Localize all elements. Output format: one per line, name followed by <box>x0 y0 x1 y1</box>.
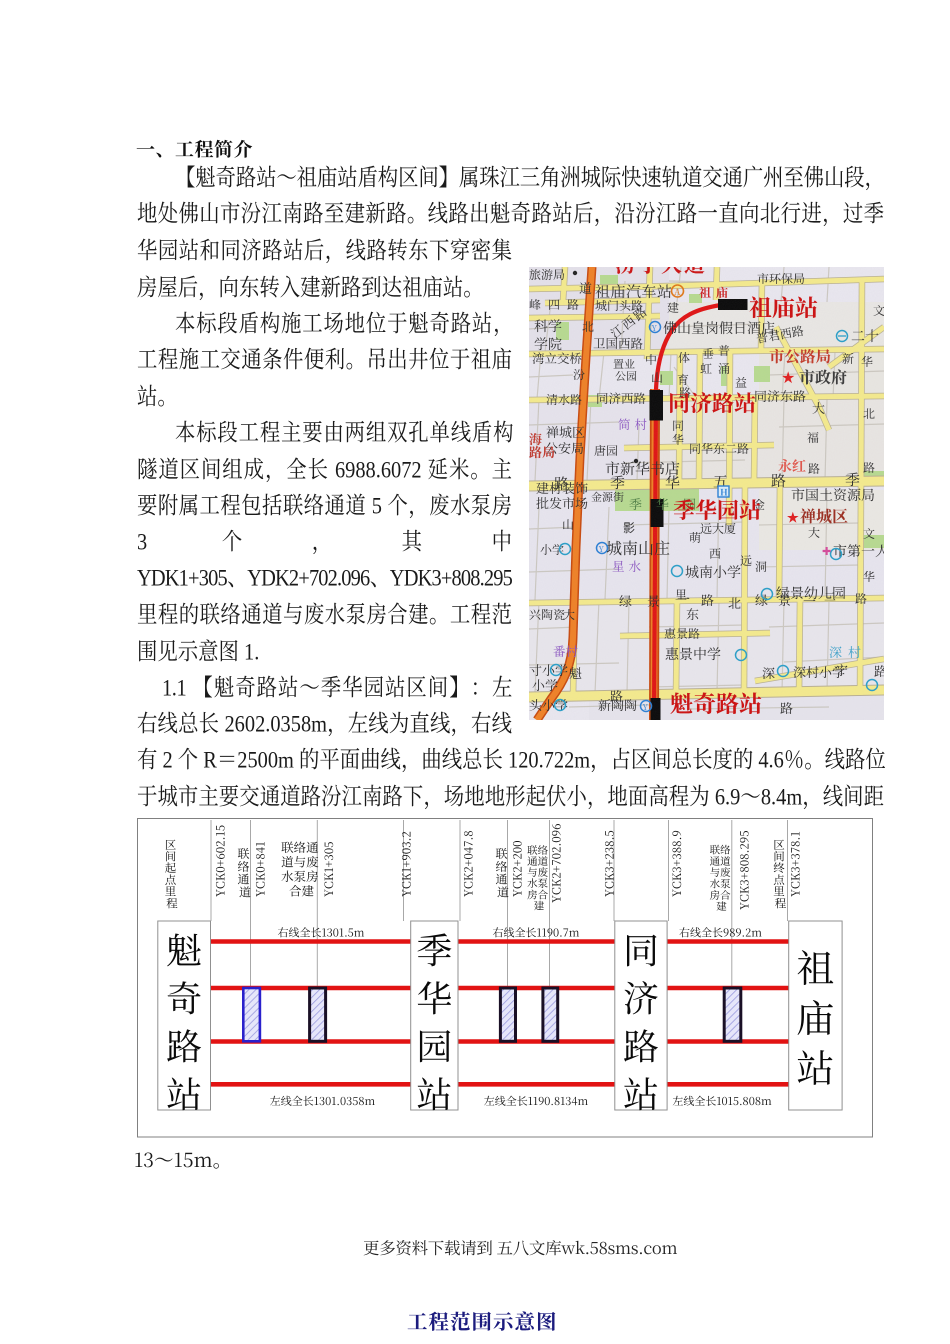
svg-text:YCK2+702.096: YCK2+702.096 <box>549 823 565 903</box>
svg-text:YCK2+200: YCK2+200 <box>510 840 526 897</box>
svg-text:联 络 通 道: 联 络 通 道 <box>495 845 510 900</box>
svg-text:庙: 庙 <box>796 988 834 1043</box>
svg-text:同: 同 <box>623 924 659 975</box>
svg-text:站: 站 <box>416 1068 452 1119</box>
svg-text:站: 站 <box>166 1068 202 1119</box>
svg-text:华: 华 <box>416 972 452 1023</box>
svg-text:右线全长1190.7m: 右线全长1190.7m <box>492 925 579 941</box>
svg-text:YCK0+602.15: YCK0+602.15 <box>213 825 229 897</box>
svg-text:YCK1+903.2: YCK1+903.2 <box>399 831 415 897</box>
svg-text:YCK3+808.295: YCK3+808.295 <box>737 830 753 910</box>
svg-text:右线全长1301.5m: 右线全长1301.5m <box>277 925 364 941</box>
svg-text:联 络 通 道: 联 络 通 道 <box>237 845 252 900</box>
svg-text:左线全长1015.808m: 左线全长1015.808m <box>672 1093 772 1109</box>
svg-text:路: 路 <box>166 1020 202 1071</box>
svg-text:YCK2+047.8: YCK2+047.8 <box>461 830 477 897</box>
svg-text:YCK3+238.5: YCK3+238.5 <box>602 830 618 897</box>
svg-text:左线全长1301.0358m: 左线全长1301.0358m <box>270 1093 376 1109</box>
svg-text:路: 路 <box>623 1020 659 1071</box>
svg-text:季: 季 <box>416 924 452 975</box>
svg-text:魁: 魁 <box>166 924 202 975</box>
svg-text:YCK3+388.9: YCK3+388.9 <box>669 830 685 897</box>
svg-text:园: 园 <box>416 1020 452 1071</box>
svg-text:右线全长989.2m: 右线全长989.2m <box>679 925 762 941</box>
svg-text:祖: 祖 <box>796 938 834 993</box>
svg-text:奇: 奇 <box>166 972 202 1023</box>
svg-text:区 间 起 点 里 程: 区 间 起 点 里 程 <box>165 837 179 912</box>
svg-text:YCK1+305: YCK1+305 <box>321 841 337 897</box>
svg-text:YCK3+378.1: YCK3+378.1 <box>788 831 804 897</box>
svg-text:左线全长1190.8134m: 左线全长1190.8134m <box>484 1093 589 1109</box>
svg-text:区 间 终 点 里 程: 区 间 终 点 里 程 <box>773 837 787 912</box>
svg-text:YCK0+841: YCK0+841 <box>253 841 269 897</box>
svg-text:站: 站 <box>623 1068 659 1119</box>
svg-text:站: 站 <box>796 1038 834 1093</box>
svg-text:济: 济 <box>623 972 659 1023</box>
